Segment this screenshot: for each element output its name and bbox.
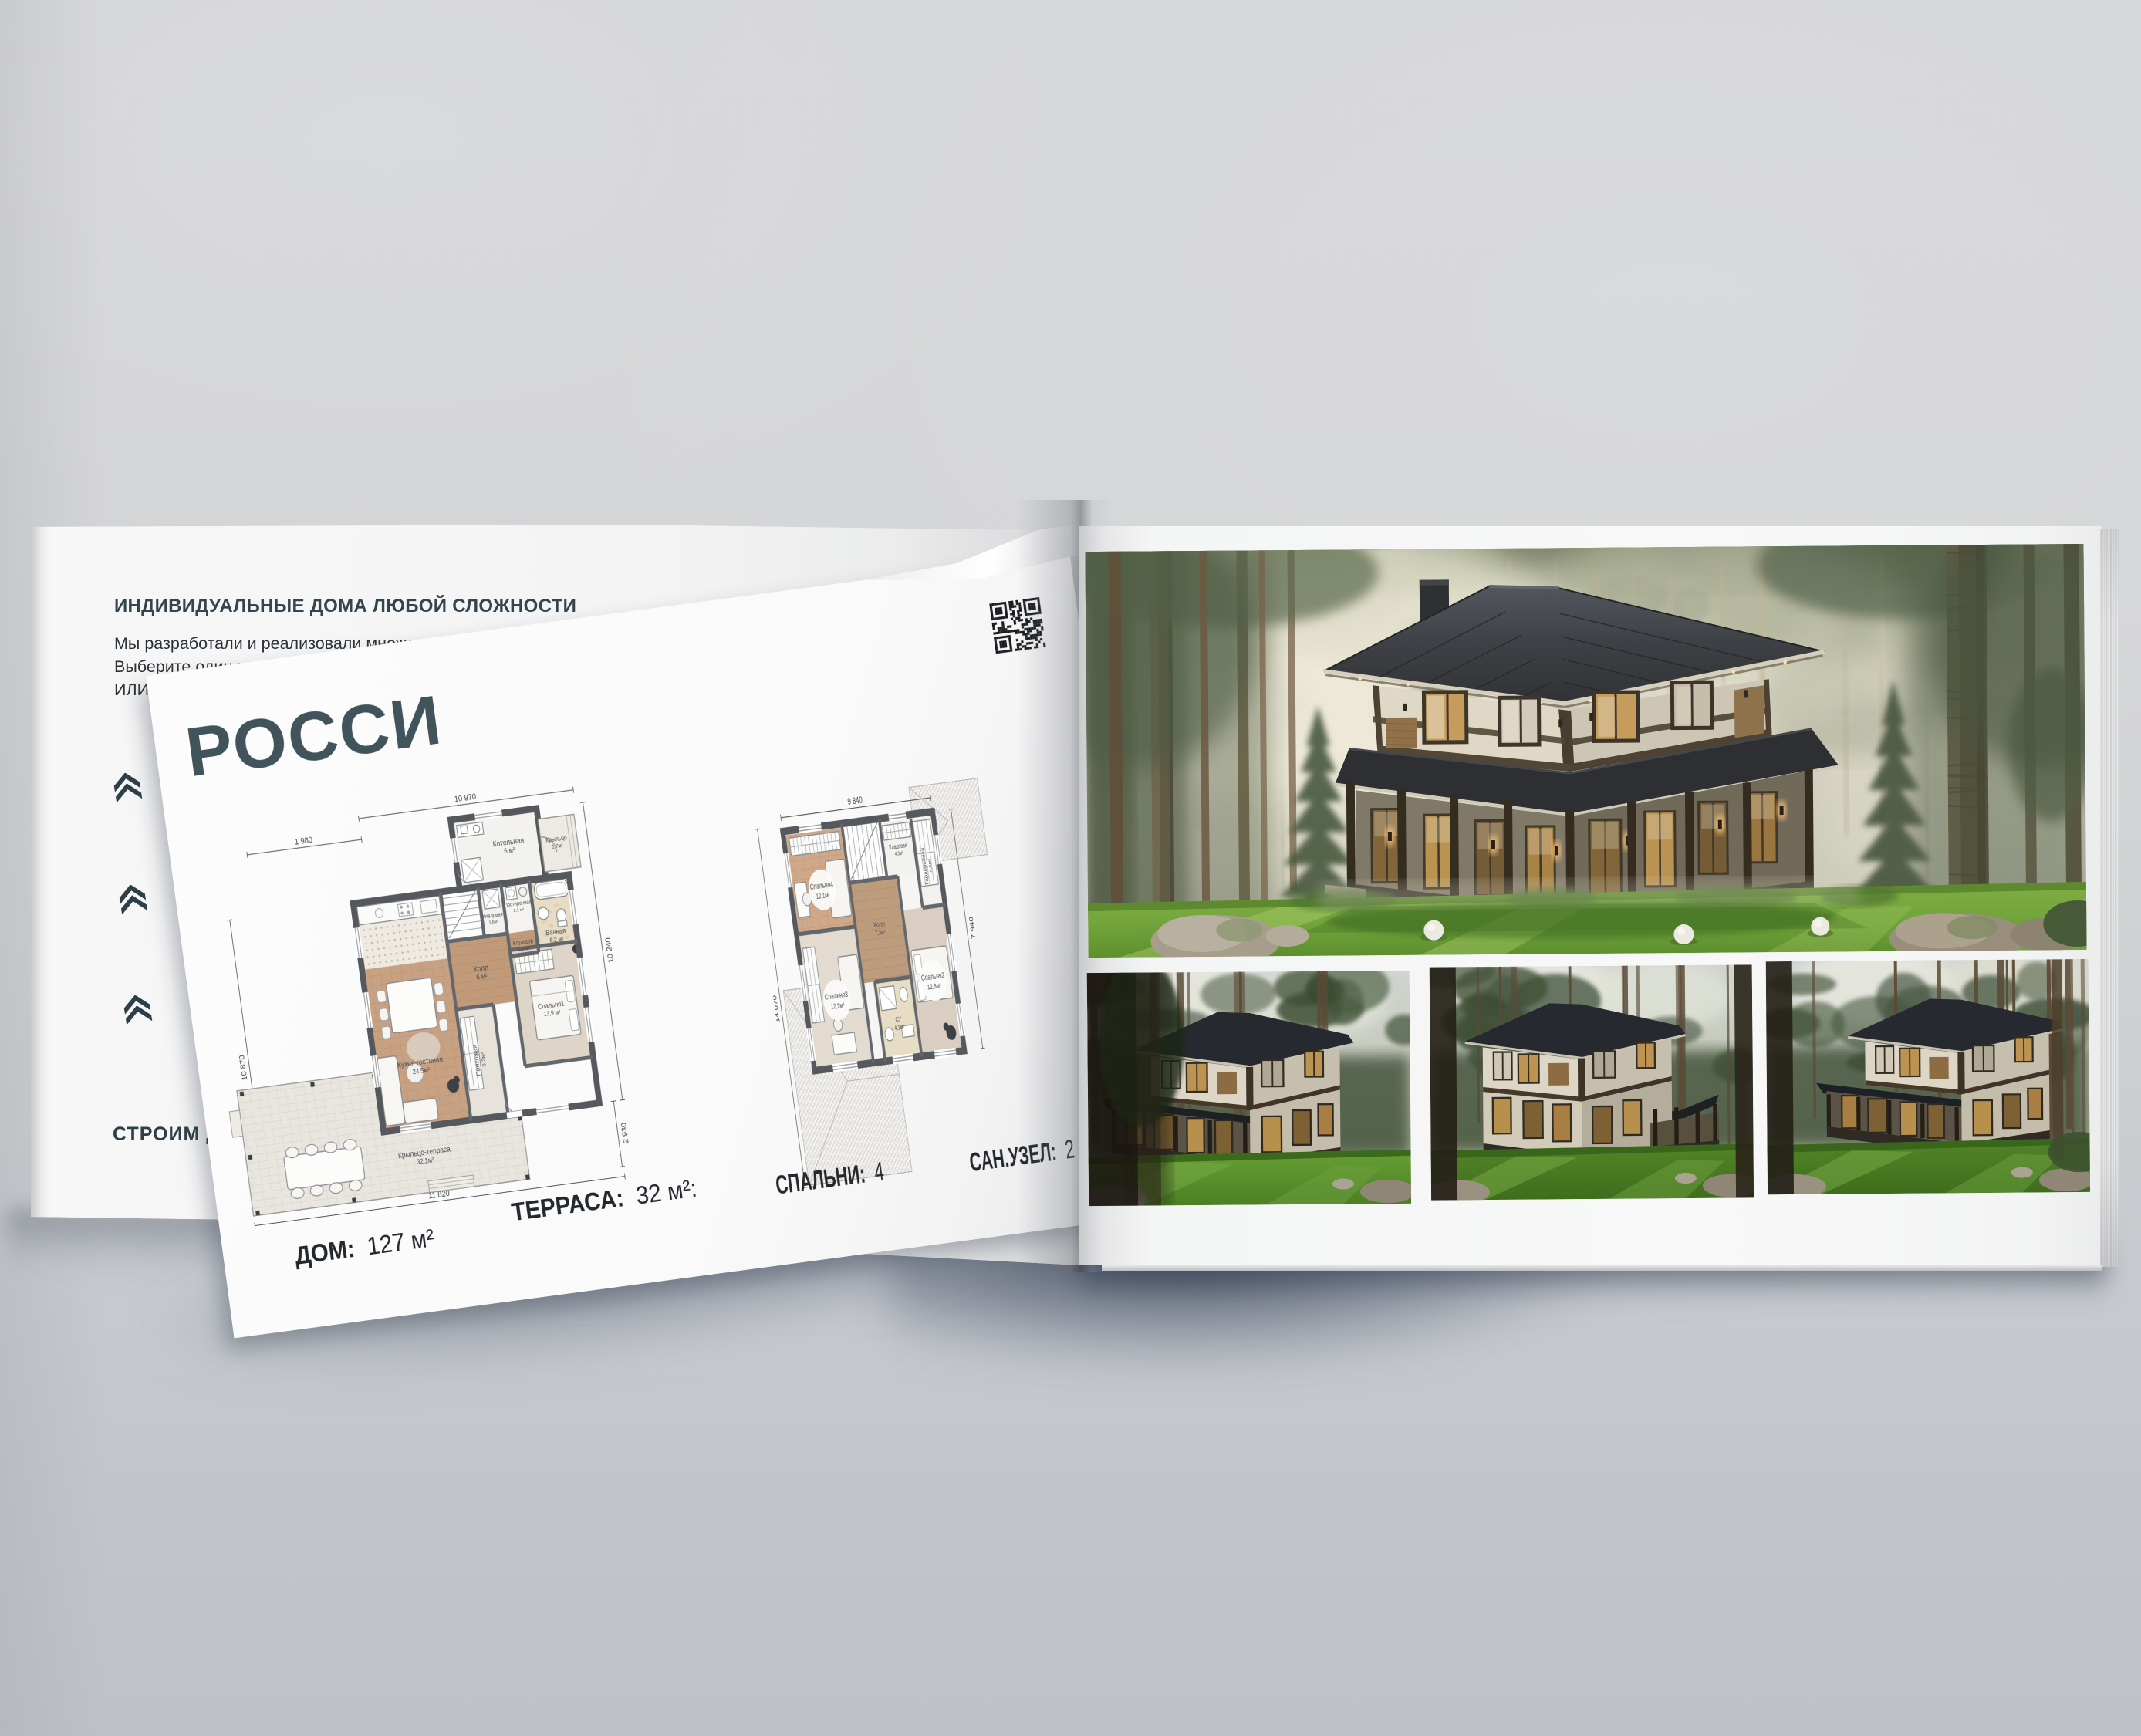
svg-text:10 870: 10 870 [238, 1054, 249, 1081]
svg-text:Холл: Холл [873, 920, 885, 930]
svg-text:4,1м²: 4,1м² [894, 1025, 905, 1032]
svg-text:6 м²: 6 м² [476, 973, 488, 981]
svg-text:1 980: 1 980 [294, 836, 313, 847]
svg-text:7 940: 7 940 [968, 916, 978, 940]
svg-text:10 240: 10 240 [604, 937, 615, 964]
svg-text:2 930: 2 930 [620, 1122, 630, 1144]
svg-text:4,3м²: 4,3м² [894, 851, 903, 857]
svg-text:10 970: 10 970 [454, 792, 477, 805]
svg-text:СУ: СУ [895, 1015, 902, 1023]
svg-text:9 840: 9 840 [847, 795, 863, 807]
svg-text:7,3м²: 7,3м² [875, 929, 886, 937]
svg-text:6 м²: 6 м² [504, 846, 515, 855]
